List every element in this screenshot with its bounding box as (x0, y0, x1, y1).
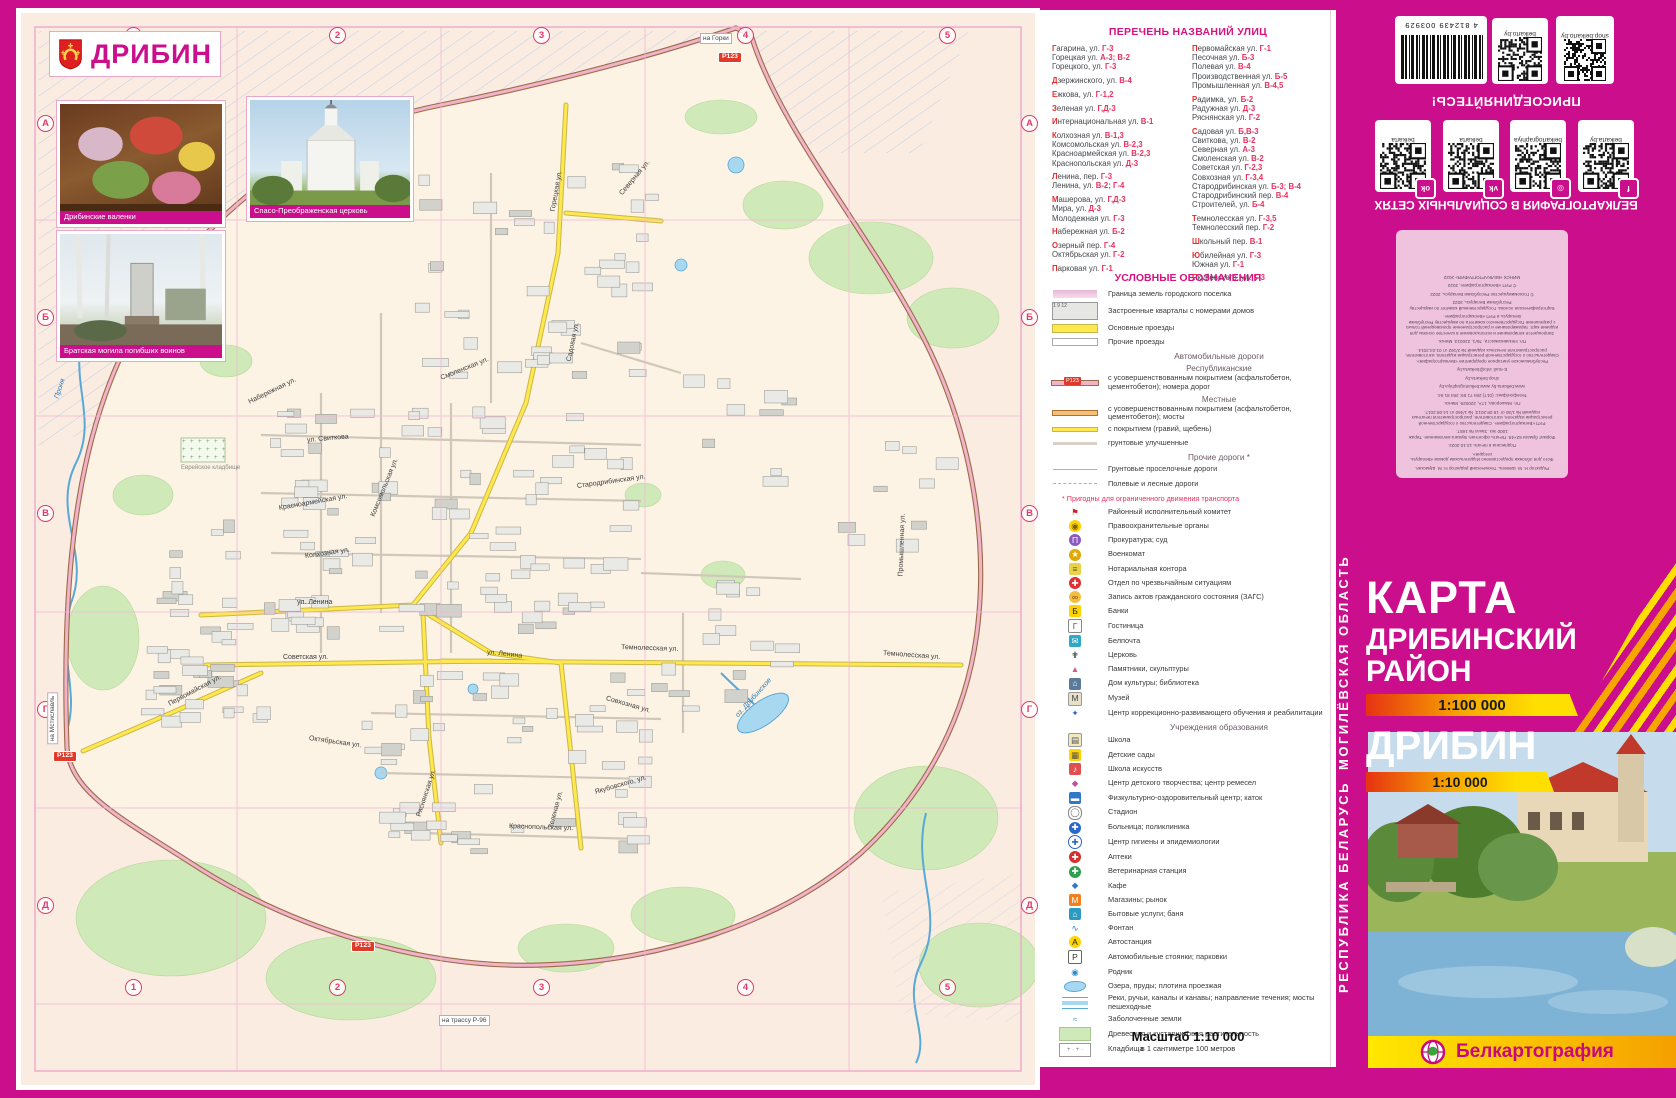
photo-memorial: Братская могила погибших воинов (57, 231, 225, 361)
legend-item: ≈Заболоченные земли (1048, 1013, 1330, 1026)
grid-row-label-left: Б (37, 309, 54, 326)
street-index-entry: Краснопольская ул. Д-3 (1052, 159, 1184, 168)
social-qr-label: belkarta (1459, 136, 1482, 143)
monument-icon: ▲ (1069, 663, 1081, 675)
legend-item: ◉Родник (1048, 966, 1330, 979)
legend-item: Р123с усовершенствованным покрытием (асф… (1048, 374, 1330, 391)
qr-belkarto-label: belkarto.by (1504, 30, 1536, 37)
grid-col-label-bottom: 2 (329, 979, 346, 996)
star-icon: ★ (1069, 549, 1081, 561)
street-index-entry: Радимка, ул. Б-2 (1192, 95, 1332, 104)
street-index-entry: Октябрьская ул. Г-2 (1052, 250, 1184, 259)
legend-note: * Пригодны для ограниченного движения тр… (1048, 492, 1330, 506)
destination-label: на трассу Р-96 (439, 1015, 490, 1026)
instagram-icon: ◎ (1550, 178, 1571, 199)
imprint-line: Подписана в печать 13.10.2022. (1405, 443, 1559, 449)
street-index-entry: Южная ул. Г-1 (1192, 260, 1332, 269)
street-index-entry: Садовая ул. Б,В-3 (1192, 127, 1332, 136)
vk-icon: vk (1483, 178, 1504, 199)
street-index-entry: Красноармейская ул. В-2,3 (1052, 149, 1184, 158)
scale-title: Масштаб 1:10 000 (1040, 1029, 1336, 1044)
grid-col-label-bottom: 5 (939, 979, 956, 996)
grid-col-label-top: 3 (533, 27, 550, 44)
legend-item: ⚑Районный исполнительный комитет (1048, 506, 1330, 519)
grid-row-label-right: А (1021, 115, 1038, 132)
barcode-box: 4 812439 003929 (1395, 16, 1487, 84)
street-name-label: Комсомольская ул. (370, 457, 400, 517)
grid-row-label-right: Б (1021, 309, 1038, 326)
scale-banner-town: 1:10 000 (1366, 772, 1554, 792)
destination-label: на Мстиславль (47, 693, 58, 745)
legend-item: ★Военкомат (1048, 548, 1330, 561)
street-index-entry: Стародрибинская ул. Б-3; В-4 (1192, 182, 1332, 191)
street-name-label: Зеленая ул. (548, 790, 565, 829)
street-index-entry: Северная ул. А-3 (1192, 145, 1332, 154)
legend-item: ▦Детские сады (1048, 749, 1330, 762)
street-name-label: Октябрьская ул. (309, 735, 362, 749)
photo-valenki-art (60, 104, 222, 224)
photo-memorial-art (60, 234, 222, 358)
street-name-label: Северная ул. (618, 159, 651, 197)
vet-icon: ✚ (1069, 866, 1081, 878)
legend-title: УСЛОВНЫЕ ОБОЗНАЧЕНИЯ (1040, 272, 1336, 284)
street-name-label: ул. Ленина (297, 599, 332, 606)
legend-item: ✚Отдел по чрезвычайным ситуациям (1048, 577, 1330, 590)
country-vertical-label: РЕСПУБЛИКА БЕЛАРУСЬ (1336, 768, 1351, 993)
street-index-entry: Темнолесский пер. Г-2 (1192, 223, 1332, 232)
cafe-icon: ◆ (1069, 880, 1081, 892)
water-name-label: оз. Дрибинское (734, 677, 773, 719)
street-index-entry: Первомайская ул. Г-1 (1192, 44, 1332, 53)
services-icon: ⌂ (1069, 908, 1081, 920)
sport-icon: ▬ (1069, 792, 1081, 804)
legend-item: ББанки (1048, 605, 1330, 618)
legend-item: ▤Школа (1048, 733, 1330, 747)
church-icon: ✟ (1069, 649, 1081, 661)
scale-block: Масштаб 1:10 000 в 1 сантиметре 100 метр… (1040, 1029, 1336, 1053)
street-name-label: Темнолесская ул. (621, 644, 679, 653)
legend-item: Грунтовые проселочные дороги (1048, 463, 1330, 476)
barcode-number: 4 812439 003929 (1395, 21, 1487, 30)
region-vertical-label: МОГИЛЁВСКАЯ ОБЛАСТЬ (1336, 585, 1351, 770)
cover-title-block: КАРТА ДРИБИНСКИЙРАЙОН 1:100 000 ДРИБИН 1… (1366, 575, 1616, 792)
fold-line (1330, 10, 1331, 1067)
grid-row-label-right: В (1021, 505, 1038, 522)
grid-row-label-left: Д (37, 897, 54, 914)
legend-section-header: Местные (1048, 393, 1360, 405)
legend-item: ∿Фонтан (1048, 922, 1330, 935)
fountain-icon: ∿ (1069, 922, 1081, 934)
street-name-label: Стародрибинская ул. (577, 473, 646, 490)
street-name-label: Краснопольская ул. (509, 823, 573, 832)
social-qr-label: belkarta (1391, 136, 1414, 143)
street-index-entry: Ежкова, ул. Г-1,2 (1052, 90, 1184, 99)
street-index-entry: Темнолесская ул. Г-3,5 (1192, 214, 1332, 223)
imprint-line: Пл. Машерова, 17А, 220029, Минск. (1405, 401, 1559, 407)
street-index-entry: Горецкая ул. А-3; В-2 (1052, 53, 1184, 62)
legend-item: ААвтостанция (1048, 936, 1330, 949)
imprint-line: www.belkarta.by www.belkartographiya.by (1405, 384, 1559, 390)
street-index-entry: Ленина, ул. В-2; Г-4 (1052, 181, 1184, 190)
legend-rows: Граница земель городского поселка1 9 12З… (1048, 288, 1330, 1058)
imprint-line: МИНСК «БЕЛКАРТОГРАФИЯ» 2022 (1405, 275, 1559, 281)
imprint-line: shop.belkarta.by (1405, 376, 1559, 382)
street-name-label: Темнолесская ул. (883, 650, 941, 661)
shop-icon: М (1069, 894, 1081, 906)
street-index-entry: Смоленская ул. В-2 (1192, 154, 1332, 163)
pharmacy-icon: ✚ (1069, 851, 1081, 863)
town-plan-sheet: + (16, 8, 1040, 1090)
legend-item: Основные проезды (1048, 322, 1330, 335)
imprint-block: Редактор Н. М. Шевель. Технический редак… (1396, 230, 1568, 478)
grid-col-label-top: 5 (939, 27, 956, 44)
grid-row-label-right: Д (1021, 897, 1038, 914)
imprint-line: Республиканское унитарное предприятие «Б… (1405, 348, 1559, 365)
imprint-line: Телефон/факс: (017) 284 71 59; 284 81 54… (1405, 393, 1559, 399)
publisher-band: Белкартография (1368, 1036, 1676, 1068)
grid-row-label-right: Г (1021, 701, 1038, 718)
imprint-line: © Госкомимущество Республики Беларусь, 2… (1405, 292, 1559, 298)
street-index-entry: Юбилейная ул. Г-3 (1192, 251, 1332, 260)
correction-icon: ✦ (1069, 707, 1081, 719)
notary-icon: ≡ (1069, 563, 1081, 575)
street-name-label: Первомайская ул. (167, 674, 222, 708)
grid-col-label-bottom: 3 (533, 979, 550, 996)
legend-item: ММузей (1048, 692, 1330, 706)
street-name-label: Ряснянская ул. (416, 769, 438, 818)
grid-row-label-left: А (37, 115, 54, 132)
grid-row-label-left: В (37, 505, 54, 522)
legend-item: ✚Центр гигиены и эпидемиологии (1048, 835, 1330, 849)
legend-item: Полевые и лесные дороги (1048, 478, 1330, 491)
ean-barcode (1399, 35, 1483, 79)
artschool-icon: ♪ (1069, 763, 1081, 775)
street-index-entry: Горецкого, ул. Г-3 (1052, 62, 1184, 71)
street-index-entry: Строителей, ул. Б-4 (1192, 200, 1332, 209)
stadium-icon: ◯ (1068, 806, 1082, 820)
street-index-entry: Гагарина, ул. Г-3 (1052, 44, 1184, 53)
social-heading: БЕЛКАРТОГРАФИЯ В СОЦИАЛЬНЫХ СЕТЯХ (1368, 198, 1644, 212)
area-name-label: Еврейское кладбище (181, 465, 240, 471)
hotel-icon: Г (1068, 619, 1082, 633)
hospital-icon: ✚ (1069, 822, 1081, 834)
photo-valenki-caption: Дрибинские валенки (60, 211, 222, 224)
street-index-entry: Машерова, ул. Г,Д-3 (1052, 195, 1184, 204)
town-title-box: ДРИБИН (49, 31, 221, 77)
street-index-entry: Мира, ул. Д-3 (1052, 204, 1184, 213)
imprint-line: Запрещается копирование и использование … (1405, 314, 1559, 336)
photo-church-art (250, 100, 410, 218)
legend-item: грунтовые улучшенные (1048, 437, 1330, 450)
legend-item: Реки, ручьи, каналы и канавы; направлени… (1048, 994, 1330, 1011)
street-name-label: Красноармейская ул. (278, 493, 347, 512)
street-index-col2: Первомайская ул. Г-1Песочная ул. Б-3Поле… (1192, 44, 1332, 283)
legend-item: ✦Центр коррекционно-развивающего обучени… (1048, 707, 1330, 720)
imprint-line: E-mail: info@belkarta.by (1405, 367, 1559, 373)
legend-item: ◯Стадион (1048, 806, 1330, 820)
creativity-icon: ◆ (1069, 778, 1081, 790)
school-icon: ▤ (1068, 733, 1082, 747)
street-index-entry: Зеленая ул. Г,Д-3 (1052, 104, 1184, 113)
culture-icon: ⌂ (1069, 678, 1081, 690)
scale-subtitle: в 1 сантиметре 100 метров (1040, 1044, 1336, 1053)
photo-church-caption: Спасо-Преображенская церковь (250, 205, 410, 218)
street-index-entry: Советская ул. Г-2,3 (1192, 163, 1332, 172)
road-number-badge: Р123 (718, 52, 742, 63)
facebook-icon: f (1618, 178, 1639, 199)
imprint-line: Редактор Н. М. Шевель. Технический редак… (1405, 466, 1559, 472)
legend-item: ◉Правоохранительные органы (1048, 520, 1330, 533)
grid-col-label-top: 2 (329, 27, 346, 44)
legend-item: ◆Кафе (1048, 879, 1330, 892)
legend-item: ММагазины; рынок (1048, 894, 1330, 907)
street-name-label: Набережная ул. (247, 377, 297, 406)
social-qr-label: belkartographiya (1514, 136, 1562, 143)
legend-item: ⌂Дом культуры; библиотека (1048, 677, 1330, 690)
water-name-label: Проня (54, 378, 67, 400)
legend-item: ▬Физкультурно-оздоровительный центр; кат… (1048, 792, 1330, 805)
grid-col-label-bottom: 4 (737, 979, 754, 996)
publisher-name: Белкартография (1456, 1041, 1614, 1063)
street-name-label: ул. Свиткова (307, 433, 349, 444)
photo-church: Спасо-Преображенская церковь (247, 97, 413, 221)
busstation-icon: А (1069, 936, 1081, 948)
street-index-entry: Дзержинского, ул. В-4 (1052, 76, 1184, 85)
street-name-label: Садовая ул. (566, 322, 581, 362)
street-index-title: ПЕРЕЧЕНЬ НАЗВАНИЙ УЛИЦ (1040, 26, 1336, 38)
museum-icon: М (1068, 692, 1082, 706)
legend-item: ▲Памятники, скульптуры (1048, 663, 1330, 676)
legend-item: ✉Белпочта (1048, 635, 1330, 648)
scale-banner-district: 1:100 000 (1366, 694, 1578, 716)
legend-section-header: Учреждения образования (1048, 721, 1360, 733)
qr-code-belkarto (1498, 37, 1542, 81)
street-index-entry: Молодежная ул. Г-3 (1052, 214, 1184, 223)
cover-subtitle: ДРИБИНСКИЙРАЙОН (1366, 624, 1616, 688)
legend-item: Граница земель городского поселка (1048, 288, 1330, 301)
legend-item: ∞Запись актов гражданского состояния (ЗА… (1048, 591, 1330, 604)
imprint-line: © РУП «Белкартография», 2022 (1405, 283, 1559, 289)
legend-section-header: Прочие дороги * (1048, 451, 1360, 463)
legend-item: ⌂Бытовые услуги; баня (1048, 908, 1330, 921)
legend-item: ✚Больница; поликлиника (1048, 821, 1330, 834)
street-name-label: Советская ул. (283, 654, 328, 661)
destination-label: на Горки (700, 33, 732, 44)
legend-item: Озера, пруды; плотина проезжая (1048, 980, 1330, 993)
road-number-badge: Р123 (351, 941, 375, 952)
imprint-line: Фото для обложки предоставлено Издательс… (1405, 452, 1559, 463)
legend-item: ✟Церковь (1048, 649, 1330, 662)
qr-shop-belkarto: shop.belkarto.by (1556, 16, 1614, 84)
qr-belkarto: belkarto.by (1492, 18, 1548, 84)
town-title: ДРИБИН (91, 39, 212, 70)
legend-item: ≡Нотариальная контора (1048, 562, 1330, 575)
street-index-entry: Песочная ул. Б-3 (1192, 53, 1332, 62)
legend-item: ✚Ветеринарная станция (1048, 865, 1330, 878)
parking-icon: P (1068, 950, 1082, 964)
shield-icon: ◉ (1069, 520, 1081, 532)
street-index-entry: Ленина, пер. Г-3 (1052, 172, 1184, 181)
map-sheet-page: + (0, 0, 1676, 1098)
street-index-entry: Интернациональная ул. В-1 (1052, 117, 1184, 126)
drybin-coat-of-arms-icon (58, 35, 83, 73)
legend-item: с покрытием (гравий, щебень) (1048, 423, 1330, 436)
street-index-entry: Свиткова, ул. В-2 (1192, 136, 1332, 145)
imprint-line: РУП «Белкартография». Свидетельство о го… (1405, 410, 1559, 427)
marsh-icon: ≈ (1069, 1013, 1081, 1025)
legend-item: ППрокуратура; суд (1048, 534, 1330, 547)
cover-title-karta: КАРТА (1366, 575, 1616, 620)
street-index-entry: Озерный пер. Г-4 (1052, 241, 1184, 250)
street-index-entry: Производственная ул. Б-5 (1192, 72, 1332, 81)
zags-icon: ∞ (1069, 591, 1081, 603)
street-name-label: Якубовского, ул. (594, 774, 647, 795)
ok-icon: ok (1415, 178, 1436, 199)
street-index-entry: Комсомольская ул. В-2,3 (1052, 140, 1184, 149)
legend-item: ГГостиница (1048, 619, 1330, 633)
photo-valenki: Дрибинские валенки (57, 101, 225, 227)
street-name-label: Совхозная ул. (605, 695, 651, 714)
grid-col-label-bottom: 1 (125, 979, 142, 996)
photo-memorial-caption: Братская могила погибших воинов (60, 345, 222, 358)
spring-icon: ◉ (1069, 966, 1081, 978)
imprint-line: Формат бумаги 62×48. Печать офсетная. Бу… (1405, 429, 1559, 440)
legend-item: ♪Школа искусств (1048, 763, 1330, 776)
cover-town: ДРИБИН (1366, 726, 1616, 766)
bank-icon: Б (1069, 605, 1081, 617)
legend-item: с усовершенствованным покрытием (асфальт… (1048, 405, 1330, 422)
street-index-col1: Гагарина, ул. Г-3Горецкая ул. А-3; В-2Го… (1052, 44, 1184, 273)
legend-item: 1 9 12Застроенные кварталы с номерами до… (1048, 302, 1330, 320)
qr-shop-belkarto-label: shop.belkarto.by (1561, 32, 1609, 39)
street-index-entry: Ряснянская ул. Г-2 (1192, 113, 1332, 122)
street-name-label: Колхозная ул. (305, 547, 351, 560)
legend-section-header: Автомобильные дороги (1048, 350, 1360, 362)
street-index-entry: Радужная ул. Д-3 (1192, 104, 1332, 113)
kindergarten-icon: ▦ (1069, 749, 1081, 761)
street-index-entry: Набережная ул. Б-2 (1052, 227, 1184, 236)
street-index-entry: Стародрибинский пер. В-4 (1192, 191, 1332, 200)
mchs-icon: ✚ (1069, 577, 1081, 589)
street-index-entry: Совхозная ул. Г-3,4 (1192, 173, 1332, 182)
qr-code-shop-belkarto (1564, 39, 1606, 81)
grid-col-label-top: 4 (737, 27, 754, 44)
road-number-badge: Р123 (53, 751, 77, 762)
imprint-line: Пл. Независимости, 7Б/1, 220013, Минск. (1405, 339, 1559, 345)
street-index-entry: Полевая ул. В-4 (1192, 62, 1332, 71)
belkartografia-globe-icon (1420, 1039, 1446, 1065)
street-name-label: Горецкая ул. (550, 170, 564, 212)
legend-item: Прочие проезды (1048, 336, 1330, 349)
social-qr-label: belkarta.by (1590, 136, 1622, 143)
legend-item: ✚Аптеки (1048, 851, 1330, 864)
legend-item: ◆Центр детского творчества; центр ремесе… (1048, 777, 1330, 790)
join-heading: ПРИСОЕДИНЯЙТЕСЬ! (1375, 94, 1637, 109)
street-index-entry: Промышленная ул. В-4,5 (1192, 81, 1332, 90)
post-icon: ✉ (1069, 635, 1081, 647)
imprint-text: Редактор Н. М. Шевель. Технический редак… (1396, 230, 1568, 478)
index-legend-column: ПЕРЕЧЕНЬ НАЗВАНИЙ УЛИЦ Гагарина, ул. Г-3… (1040, 10, 1336, 1067)
street-name-label: Промышленная ул. (898, 513, 907, 576)
street-name-label: ул. Ленина (487, 649, 523, 660)
prosecutor-icon: П (1069, 534, 1081, 546)
street-index-entry: Колхозная ул. В-1,3 (1052, 131, 1184, 140)
street-index-entry: Школьный пер. В-1 (1192, 237, 1332, 246)
flag-icon: ⚑ (1069, 506, 1081, 518)
hygiene-icon: ✚ (1068, 835, 1082, 849)
legend-item: PАвтомобильные стоянки; парковки (1048, 950, 1330, 964)
street-name-label: Смоленская ул. (440, 356, 490, 382)
imprint-line: Картографическая основа. Государственный… (1405, 300, 1559, 311)
